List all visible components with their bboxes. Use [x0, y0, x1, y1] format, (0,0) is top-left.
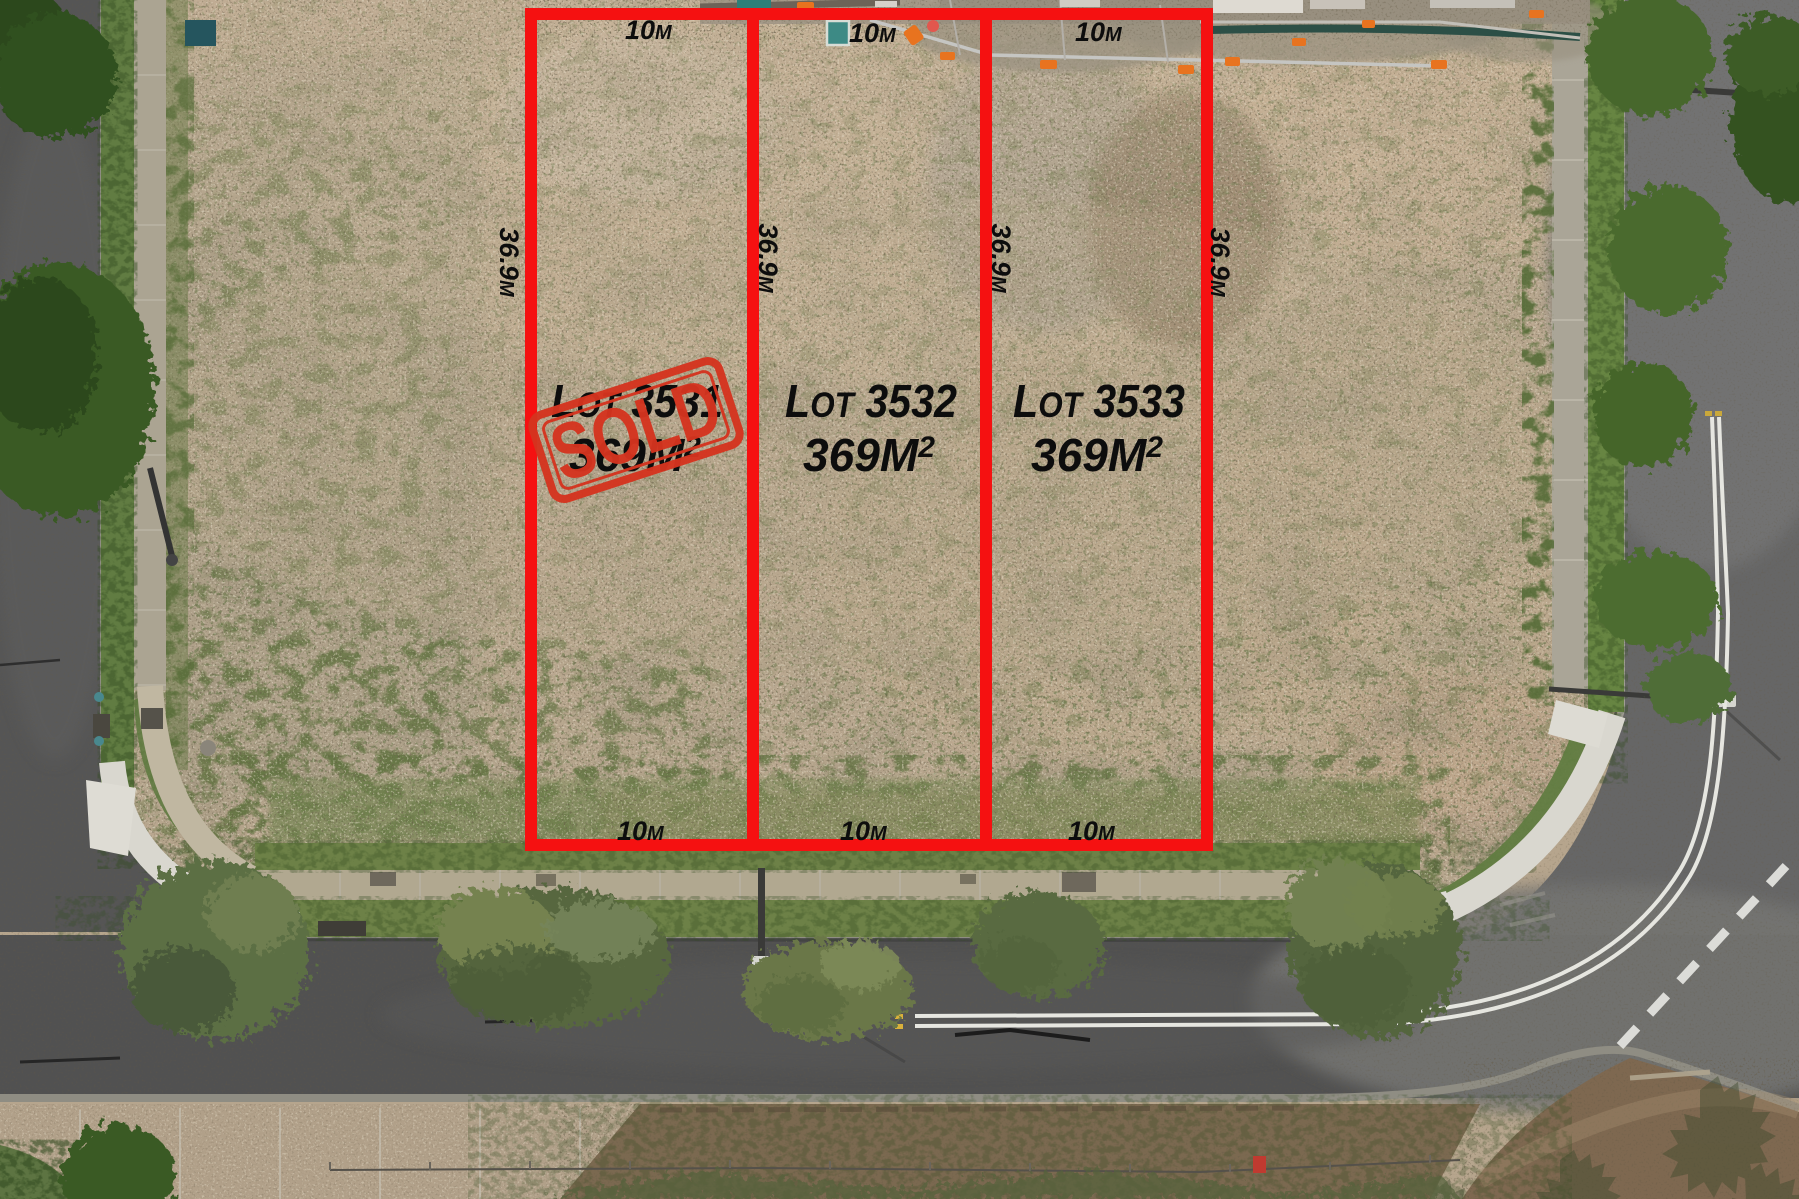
- svg-text:369M2: 369M2: [1031, 429, 1163, 481]
- svg-text:369M2: 369M2: [803, 429, 935, 481]
